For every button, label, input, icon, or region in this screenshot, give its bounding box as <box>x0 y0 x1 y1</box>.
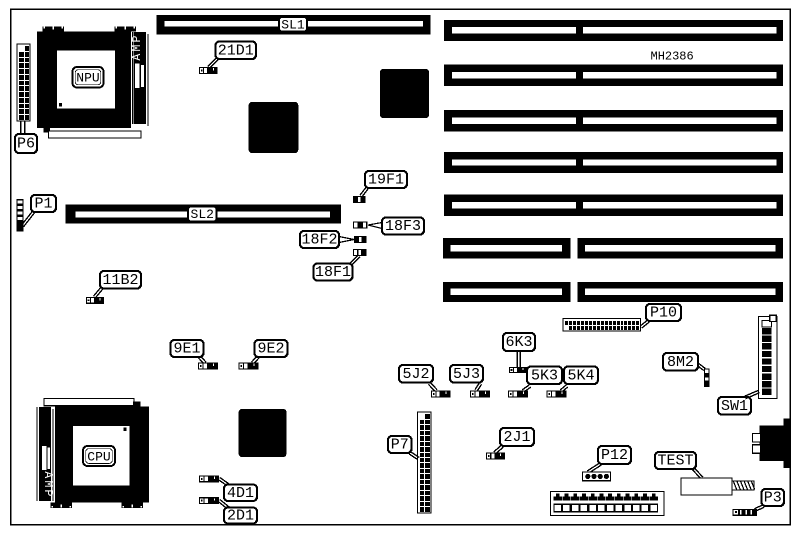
svg-text:9E1: 9E1 <box>173 341 200 358</box>
svg-text:5K4: 5K4 <box>567 367 594 384</box>
svg-text:P7: P7 <box>391 437 409 454</box>
svg-text:5J3: 5J3 <box>453 366 480 383</box>
svg-text:P1: P1 <box>34 196 52 213</box>
svg-text:SL2: SL2 <box>191 207 214 222</box>
svg-text:P3: P3 <box>764 490 782 507</box>
svg-text:2D1: 2D1 <box>227 508 254 525</box>
svg-text:21D1: 21D1 <box>218 42 254 59</box>
svg-text:SW1: SW1 <box>721 398 748 415</box>
svg-text:8M2: 8M2 <box>667 354 694 371</box>
svg-text:4D1: 4D1 <box>227 485 254 502</box>
svg-text:TEST: TEST <box>657 453 693 470</box>
svg-text:SL1: SL1 <box>281 17 305 32</box>
svg-text:AMP: AMP <box>131 33 144 60</box>
svg-text:AMP: AMP <box>41 471 54 498</box>
svg-text:11B2: 11B2 <box>102 272 138 289</box>
svg-text:9E2: 9E2 <box>257 341 284 358</box>
svg-text:P6: P6 <box>17 136 35 153</box>
svg-text:P12: P12 <box>601 447 628 464</box>
svg-text:MH2386: MH2386 <box>651 50 694 64</box>
svg-text:18F2: 18F2 <box>301 232 337 249</box>
svg-text:19F1: 19F1 <box>368 172 404 189</box>
svg-text:6K3: 6K3 <box>505 334 532 351</box>
svg-text:5J2: 5J2 <box>402 366 429 383</box>
svg-text:5K3: 5K3 <box>531 367 558 384</box>
svg-text:CPU: CPU <box>87 450 110 465</box>
svg-text:18F3: 18F3 <box>385 218 421 235</box>
svg-text:NPU: NPU <box>76 71 99 86</box>
svg-text:18F1: 18F1 <box>315 264 351 281</box>
svg-text:2J1: 2J1 <box>503 429 530 446</box>
svg-text:P10: P10 <box>650 305 677 322</box>
